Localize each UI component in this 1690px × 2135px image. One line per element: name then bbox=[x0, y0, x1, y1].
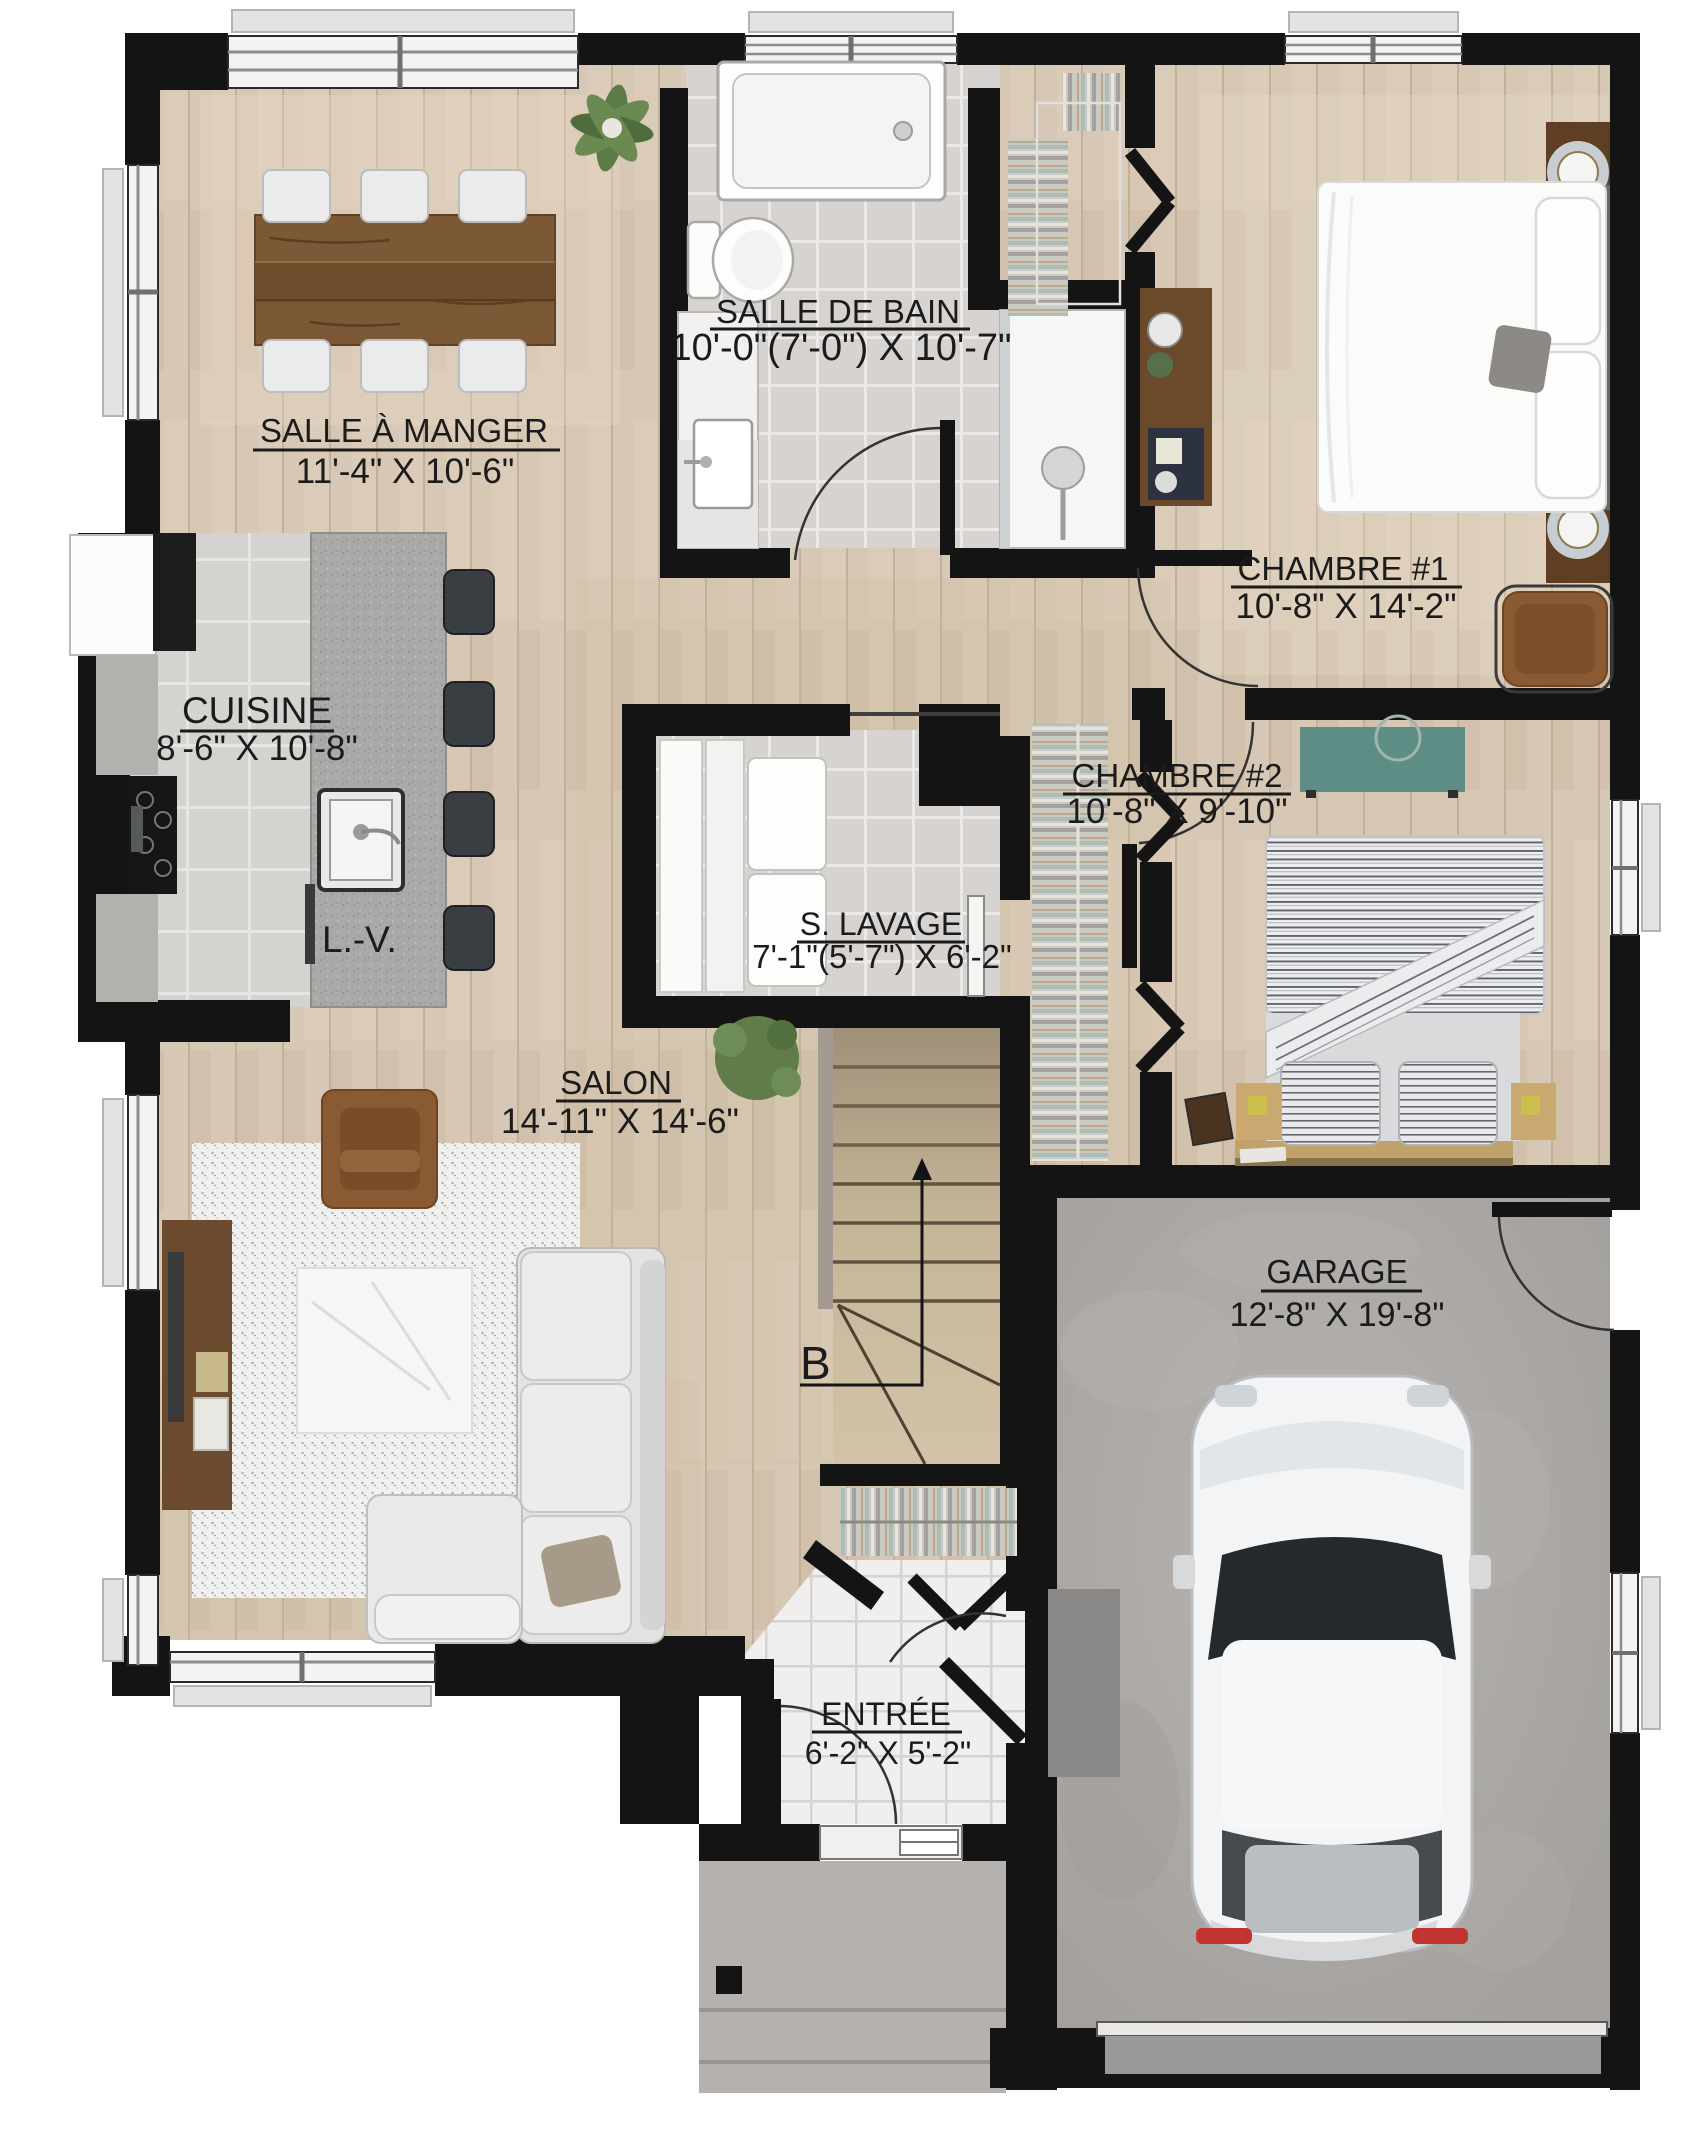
svg-text:6'-2" X 5'-2": 6'-2" X 5'-2" bbox=[805, 1735, 972, 1771]
svg-text:CHAMBRE #2: CHAMBRE #2 bbox=[1072, 757, 1283, 794]
svg-text:GARAGE: GARAGE bbox=[1266, 1253, 1407, 1290]
svg-text:7'-1"(5'-7") X 6'-2": 7'-1"(5'-7") X 6'-2" bbox=[752, 938, 1011, 975]
svg-text:ENTRÉE: ENTRÉE bbox=[821, 1696, 951, 1732]
svg-text:10'-8" X 9'-10": 10'-8" X 9'-10" bbox=[1066, 792, 1287, 831]
svg-text:11'-4" X 10'-6": 11'-4" X 10'-6" bbox=[296, 452, 515, 491]
svg-text:B: B bbox=[800, 1337, 831, 1389]
svg-text:12'-8" X 19'-8": 12'-8" X 19'-8" bbox=[1230, 1296, 1445, 1334]
svg-text:L.-V.: L.-V. bbox=[322, 919, 397, 960]
svg-text:CUISINE: CUISINE bbox=[182, 690, 332, 731]
svg-text:8'-6" X 10'-8": 8'-6" X 10'-8" bbox=[156, 729, 358, 768]
svg-text:SALLE À MANGER: SALLE À MANGER bbox=[260, 412, 548, 449]
svg-text:SALLE DE BAIN: SALLE DE BAIN bbox=[716, 293, 960, 330]
svg-text:CHAMBRE #1: CHAMBRE #1 bbox=[1238, 550, 1449, 587]
svg-text:S. LAVAGE: S. LAVAGE bbox=[800, 906, 962, 942]
svg-text:14'-11" X 14'-6": 14'-11" X 14'-6" bbox=[501, 1102, 739, 1141]
svg-text:10'-0"(7'-0") X 10'-7": 10'-0"(7'-0") X 10'-7" bbox=[670, 327, 1011, 369]
svg-text:10'-8" X 14'-2": 10'-8" X 14'-2" bbox=[1235, 587, 1456, 626]
svg-text:SALON: SALON bbox=[560, 1064, 672, 1101]
